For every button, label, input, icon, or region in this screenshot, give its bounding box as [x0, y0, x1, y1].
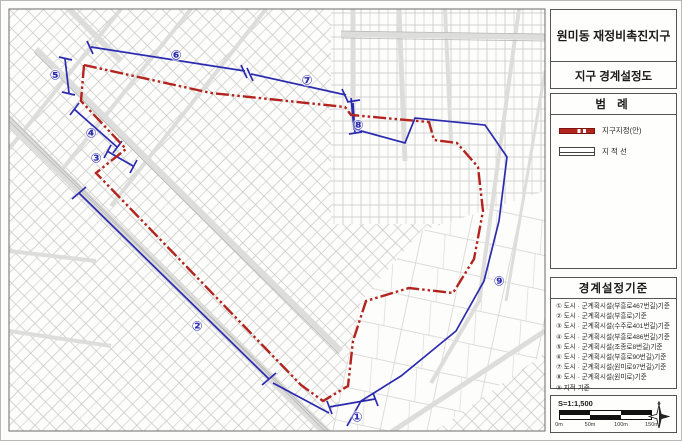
boundary-marker-4: ④	[85, 127, 96, 140]
criteria-item: ④ 도시 · 군계획시설(부흥로486번길)기준	[556, 333, 672, 343]
criteria-item: ③ 도시 · 군계획시설(수주로401번길)기준	[556, 322, 672, 332]
legend-label: 지구지정(안)	[602, 125, 642, 136]
legend-item-cadastral-line: 지 적 선	[559, 146, 668, 157]
criteria-item: ⑦ 도시 · 군계획시설(원미로97번길)기준	[556, 363, 672, 373]
red-dashed-line-swatch	[559, 128, 595, 134]
criteria-item: ⑧ 도시 · 군계획시설(원미로)기준	[556, 373, 672, 383]
boundary-marker-1: ①	[351, 411, 362, 424]
boundary-marker-9: ⑨	[493, 275, 504, 288]
legend-header: 범 례	[551, 94, 676, 115]
drawing-sheet: ①②③④⑤⑥⑦⑧⑨ 원미동 재정비촉진지구 지구 경계설정도 범 례 지구지정(…	[0, 0, 682, 441]
criteria-item: ① 도시 · 군계획시설(부흥로467번길)기준	[556, 302, 672, 312]
boundary-marker-7: ⑦	[301, 74, 312, 87]
info-panel: 원미동 재정비촉진지구 지구 경계설정도 범 례 지구지정(안) 지 적 선 경…	[550, 1, 678, 441]
criteria-item: ⑨ 지적 기준	[556, 384, 672, 394]
criteria-header: 경계설정기준	[551, 278, 676, 299]
thin-line-swatch	[559, 147, 595, 156]
boundary-marker-6: ⑥	[170, 49, 181, 62]
scale-ratio: S=1:1,500	[558, 399, 593, 408]
parcel-blocks	[9, 9, 545, 434]
scale-bar	[559, 410, 652, 420]
legend-items: 지구지정(안) 지 적 선	[551, 115, 676, 157]
criteria-block: 경계설정기준 ① 도시 · 군계획시설(부흥로467번길)기준② 도시 · 군계…	[550, 277, 677, 389]
north-compass-icon	[648, 401, 670, 431]
scale-tick-label: 50m	[585, 422, 596, 428]
legend-label: 지 적 선	[602, 146, 627, 157]
criteria-item: ⑥ 도시 · 군계획시설(부흥로90번길)기준	[556, 353, 672, 363]
legend-block: 범 례 지구지정(안) 지 적 선	[550, 93, 677, 269]
criteria-list: ① 도시 · 군계획시설(부흥로467번길)기준② 도시 · 군계획시설(부흥로…	[551, 299, 676, 394]
legend-item-district-boundary: 지구지정(안)	[559, 125, 668, 136]
scale-tick-labels: 0m50m100m150m	[559, 422, 659, 430]
scale-block: S=1:1,500 0m50m100m150m	[550, 395, 677, 433]
boundary-marker-8: ⑧	[352, 119, 363, 132]
criteria-item: ② 도시 · 군계획시설(부흥로)기준	[556, 312, 672, 322]
scale-tick-label: 100m	[614, 422, 628, 428]
drawing-title: 지구 경계설정도	[551, 61, 676, 89]
criteria-item: ⑤ 도시 · 군계획시설(조종로8번길)기준	[556, 343, 672, 353]
title-block: 원미동 재정비촉진지구 지구 경계설정도	[550, 9, 677, 89]
scale-bar-outline	[559, 410, 652, 420]
boundary-marker-2: ②	[191, 320, 202, 333]
project-title: 원미동 재정비촉진지구	[551, 10, 676, 61]
boundary-marker-5: ⑤	[49, 69, 60, 82]
boundary-marker-3: ③	[90, 152, 101, 165]
scale-tick-label: 0m	[555, 422, 563, 428]
